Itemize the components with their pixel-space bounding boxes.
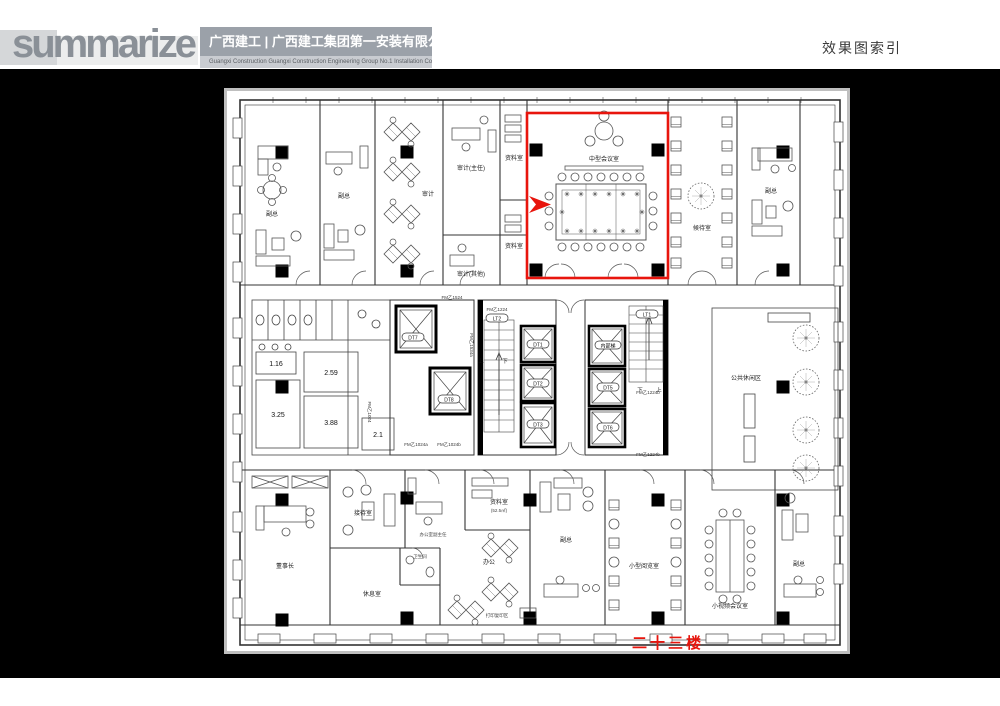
room-label-audit-other: 审计(其他) [457,270,485,278]
elevator-label-dt1: DT1 [533,343,543,349]
elevator-label-internal: 内部梯 [600,343,615,350]
reception-room-furniture [343,485,395,535]
room-label-fuzong-4: 副总 [560,536,572,544]
room-label-print: 打印复印区 [486,612,509,619]
conference-room-furniture [545,111,657,251]
room-label-archive-1: 资料室 [505,154,523,162]
door-label-2: FM乙1224 [486,306,508,312]
elevator-core-mid-east [585,300,668,455]
room-label-leisure: 公共休闲区 [731,374,761,382]
rest-room-wc [406,556,434,577]
audit-director-office [450,116,496,266]
room-label-fuzong-2: 副总 [338,192,350,200]
office-fuzong-2 [324,146,368,260]
room-label-fuzong-1: 副总 [266,210,278,218]
office-fuzong-5 [782,493,824,597]
room-label-archive-3-area: (52.5㎡) [491,507,508,513]
elevator-label-dt7: DT7 [408,336,418,342]
archive-shelves-top [505,115,521,232]
floor-plan: 1.16 2.59 3.25 3.88 2.1 [227,91,847,651]
archive-shelves-bottom [472,478,508,498]
open-office-bottom [448,533,536,625]
company-name-en: Guangxi Construction Guangxi Constructio… [200,56,432,68]
stair-down-mark: 下 [502,358,508,365]
room-label-fuzong-3: 副总 [765,187,777,195]
room-label-office: 办公 [483,558,495,566]
chairman-office [252,476,328,536]
toilet-area-3: 3.25 [271,412,285,419]
room-label-waiting: 候待室 [693,224,711,232]
floor-label: 二十三楼 [632,632,704,653]
room-label-audit-director: 审计(主任) [457,164,485,172]
floor-plan-sheet: 1.16 2.59 3.25 3.88 2.1 [224,88,850,654]
door-label-6: FM乙1024b [437,441,461,447]
leisure-area [712,308,838,490]
room-label-wc: 卫生间 [413,553,427,560]
audit-open-office [384,117,420,269]
elevator-core-west [390,300,474,455]
toilet-area-2: 2.59 [324,370,338,377]
room-label-reception: 接待室 [354,509,372,517]
elevator-label-dt8: DT8 [444,398,454,404]
header: summarize 广西建工 | 广西建工集团第一安装有限公司 Guangxi … [0,0,1000,70]
waiting-room-furniture [671,117,732,268]
door-label-1: FM乙1524 [441,294,463,300]
room-label-archive-3: 资料室 [490,498,508,506]
elevator-label-dt3: DT3 [533,423,543,429]
reading-room-furniture [609,500,681,610]
stair-label-lt2: LT2 [493,317,501,323]
video-conference-furniture [705,509,755,603]
door-label-8: FM乙1224b [636,451,660,457]
room-label-audit: 审计 [422,190,434,198]
door-label-4: FM乙1024 [367,401,373,423]
toilet-area-5: 2.1 [373,432,383,439]
room-label-deputy-director: 办公室副主任 [420,531,447,538]
company-name: 广西建工 | 广西建工集团第一安装有限公司 [200,27,432,56]
door-label-3: FM乙1534a [469,333,475,357]
room-label-archive-2: 资料室 [505,242,523,250]
room-label-rest: 休息室 [363,590,381,598]
door-label-7: FM乙1224b [636,389,660,395]
office-fuzong-1 [256,146,301,266]
slide-body: 1.16 2.59 3.25 3.88 2.1 [0,69,1000,678]
room-label-chairman: 董事长 [276,562,294,570]
toilet-area-1: 1.16 [269,361,283,368]
room-label-video-conf: 小视频会议室 [712,602,748,610]
stair-label-lt1: LT1 [643,313,651,319]
slide: summarize 广西建工 | 广西建工集团第一安装有限公司 Guangxi … [0,0,1000,706]
elevator-core-mid-west [478,300,556,455]
door-label-5: FM乙1024a [404,441,428,447]
elevator-label-dt6: DT6 [603,426,613,432]
room-label-conference: 中型会议室 [589,155,619,163]
room-label-fuzong-5: 副总 [793,560,805,568]
page-title: 效果图索引 [822,38,902,58]
stair-up-mark: 上 [478,357,484,365]
elevator-label-dt2: DT2 [533,382,543,388]
room-label-reading: 小型阅览室 [629,562,659,570]
elevator-label-dt5: DT5 [603,386,613,392]
toilet-area-4: 3.88 [324,420,338,427]
logo-text: summarize [12,24,194,64]
